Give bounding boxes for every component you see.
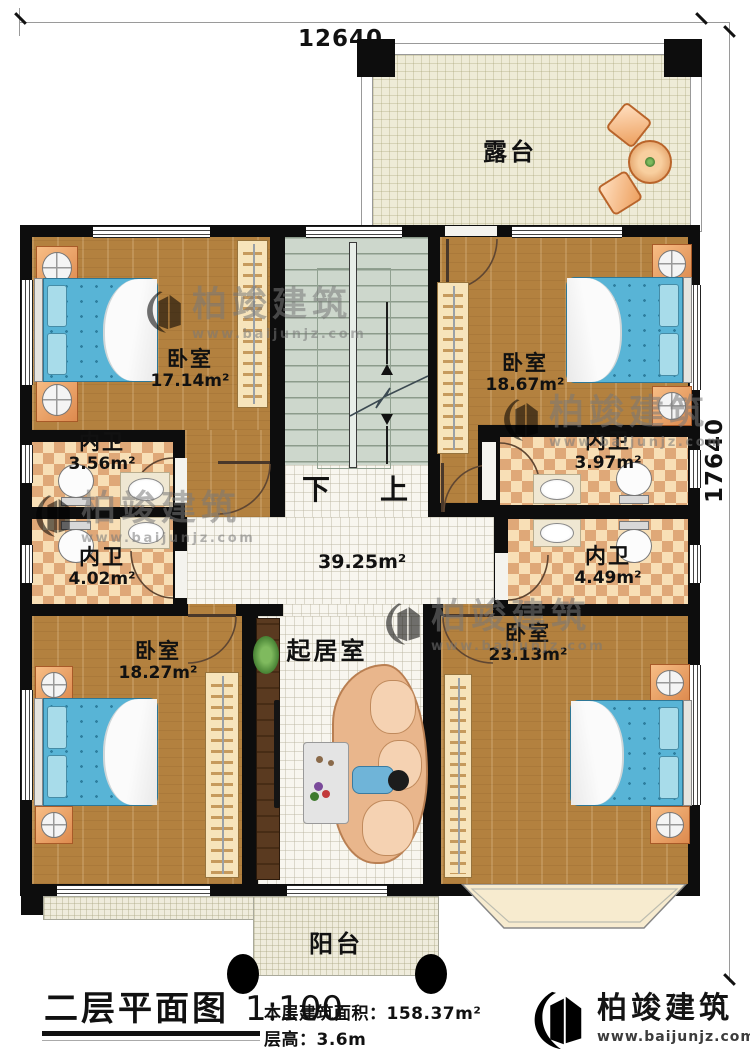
plant-icon [253,636,279,674]
bed [570,700,692,806]
room-label-bath-ml: 内卫4.02m² [52,546,152,589]
nightstand-lamp-icon [650,664,690,702]
sink-icon [128,522,164,544]
window [93,226,210,238]
nightstand-lamp-icon [652,386,692,426]
terrace-corner-column [357,39,395,77]
dimension-line-right [729,22,730,982]
wardrobe [205,672,239,878]
brand-logo: 柏竣建筑 www.baijunjz.com [528,988,750,1050]
toilet-icon [619,495,649,504]
living-room-label: 起居室 [279,631,375,666]
terrace-wall-top [361,43,702,55]
brand-name: 柏竣建筑 [597,994,750,1024]
wardrobe [444,674,472,878]
toilet-icon [61,497,91,506]
stairs-break-line [350,374,428,418]
stairs-handrail [349,242,357,468]
hall-floor [283,604,423,616]
dimension-height-label: 17640 [702,427,728,503]
stairs-arrow-down-icon [381,414,393,425]
sink-icon [540,523,574,543]
room-label-bedroom-bl: 卧室18.27m² [108,640,208,683]
nightstand-lamp-icon [650,806,690,844]
balcony-round-column [415,954,447,994]
sink-icon [540,479,574,500]
door-opening [175,458,187,503]
dimension-line-top [20,22,729,23]
bed [566,277,692,383]
wardrobe [437,282,469,454]
terrace-label: 露台 [478,132,542,167]
flower-icon [322,790,330,798]
stairs-up-label: 上 [376,468,412,508]
floorplan-canvas: 12640 17640 露台 [0,0,750,1053]
bay-window [458,884,690,932]
terrace-table-plant-icon [645,157,655,167]
brand-logo-icon [528,988,588,1050]
room-label-bedroom-tr: 卧室18.67m² [475,352,575,395]
door-opening [175,551,187,598]
room-label-bedroom-tl: 卧室17.14m² [140,348,240,391]
sink-icon [128,478,164,501]
window [512,226,622,238]
dimension-extension-left [19,8,20,36]
terrace-corner-column [664,39,702,77]
balcony-floor [43,896,257,920]
terrace-door-opening [445,226,497,236]
door-opening [495,553,508,600]
balcony-label: 阳台 [301,924,371,959]
coffee-table [303,742,349,824]
window [689,545,701,583]
flower-icon [314,782,323,791]
tv-icon [274,700,280,808]
stairs-direction-line [386,302,388,364]
balcony-column [21,896,43,915]
stairs-down-label: 下 [298,468,334,508]
brand-url: www.baijunjz.com [597,1029,750,1045]
balcony-round-column [227,954,259,994]
bed [34,698,158,806]
door-arc [508,555,548,600]
sofa-cushion [362,800,414,856]
stairs-direction-line [386,426,388,464]
room-label-bedroom-br: 卧室23.13m² [478,622,578,665]
dimension-width-label: 12640 [298,26,366,52]
wardrobe [237,240,268,408]
door-arc [218,464,270,514]
title-underline-thin [42,1040,260,1041]
floor-area-stat: 本层建筑面积：158.37m² [264,999,481,1024]
cup-icon [316,756,323,763]
window [21,280,33,385]
nightstand-lamp-icon [35,806,73,844]
sofa-cushion [370,680,416,734]
title-underline [42,1031,260,1036]
window [689,450,701,488]
window [21,445,33,483]
window [21,545,33,583]
nightstand-lamp-icon [36,378,78,422]
floor-height-stat: 层高：3.6m [264,1025,366,1050]
window [21,690,33,800]
person-head [388,770,409,791]
cup-icon [328,760,334,766]
door-opening [482,442,496,500]
room-label-bath-tr: 内卫3.97m² [553,430,663,473]
window [306,226,402,238]
flower-icon [310,792,319,801]
hall-area-label: 39.25m² [318,551,398,573]
floor-title: 二层平面图 [44,992,229,1026]
room-label-bath-tl: 内卫3.56m² [52,431,152,474]
room-label-bath-mr: 内卫4.49m² [553,545,663,588]
